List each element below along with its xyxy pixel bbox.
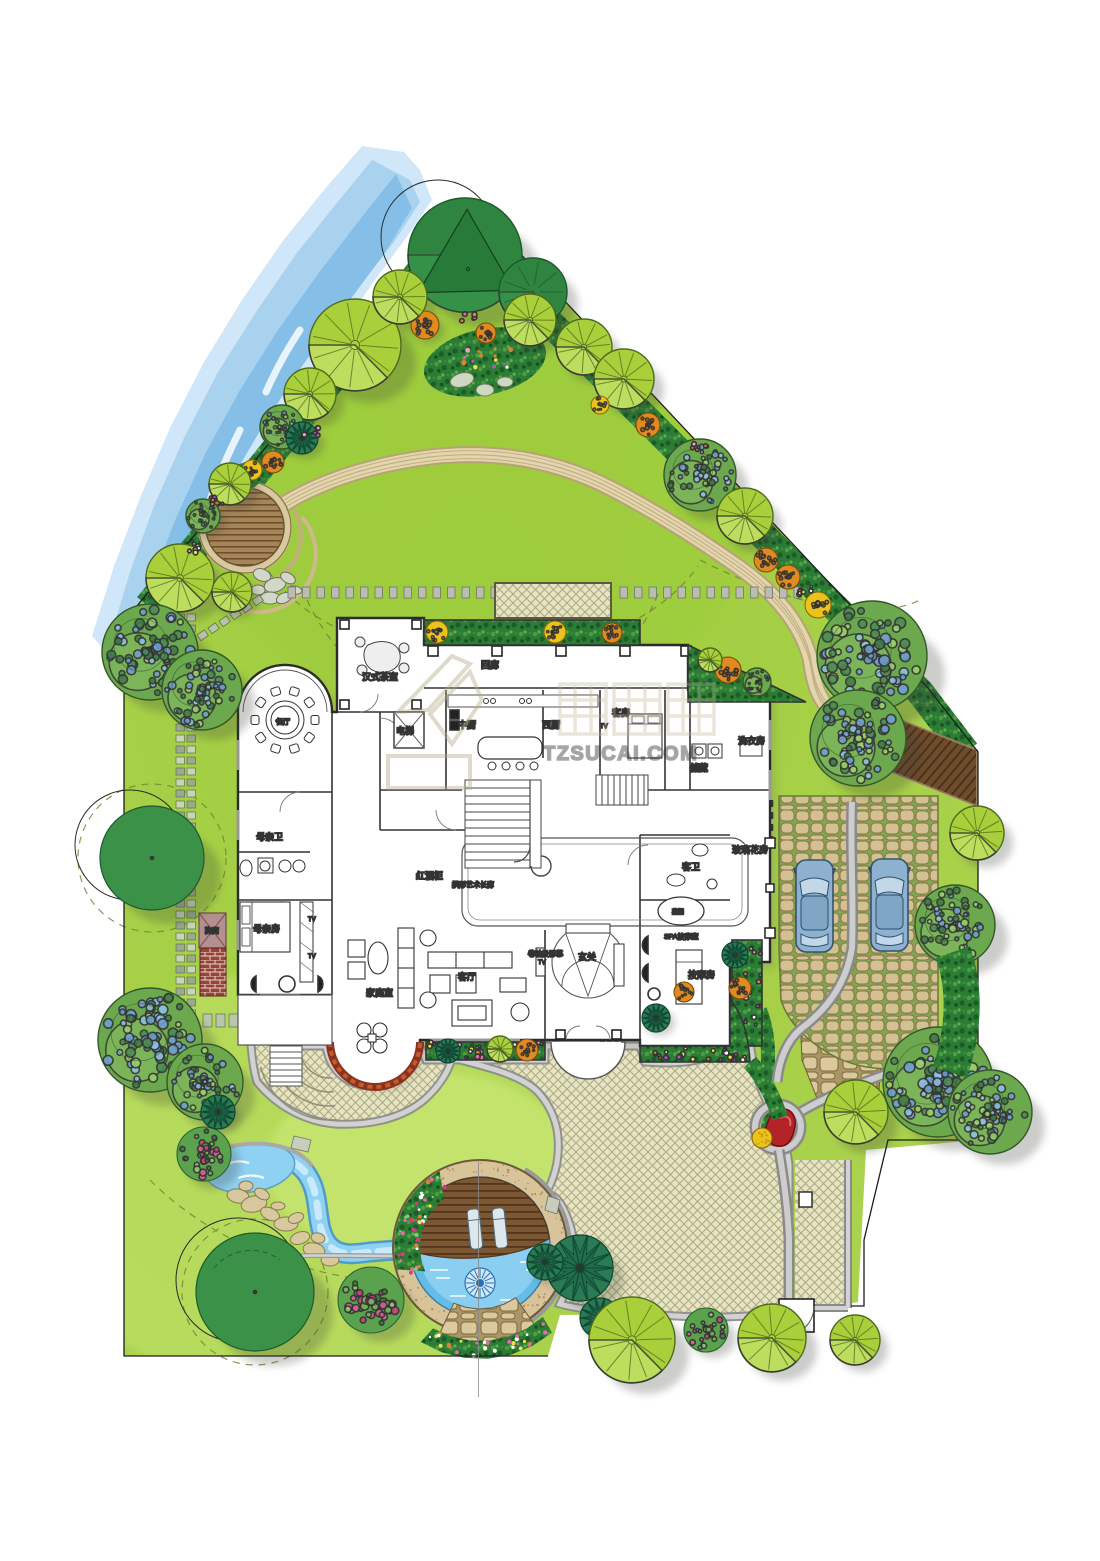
svg-text:蒸桶: 蒸桶	[672, 908, 684, 916]
svg-text:红酒柜: 红酒柜	[416, 870, 443, 881]
svg-text:汉式茶室: 汉式茶室	[362, 671, 398, 682]
svg-text:拱形艺术长廊: 拱形艺术长廊	[452, 880, 494, 889]
svg-text:母亲房: 母亲房	[253, 923, 280, 934]
svg-text:SPA按摩室: SPA按摩室	[664, 932, 699, 941]
svg-text:TV: TV	[538, 960, 546, 966]
svg-text:按摩房: 按摩房	[688, 969, 715, 980]
svg-text:家庭室: 家庭室	[366, 987, 393, 998]
svg-text:玄关: 玄关	[578, 951, 596, 962]
svg-text:电梯: 电梯	[396, 725, 414, 736]
svg-text:TV: TV	[308, 917, 316, 923]
svg-text:客厅: 客厅	[458, 971, 476, 982]
svg-text:卷轴投影幕: 卷轴投影幕	[528, 949, 563, 958]
svg-text:狗窝: 狗窝	[205, 926, 219, 935]
svg-text:洗衣房: 洗衣房	[738, 735, 765, 746]
svg-text:母亲卫: 母亲卫	[256, 831, 283, 842]
svg-text:TZSUCAI.COM: TZSUCAI.COM	[543, 743, 698, 765]
svg-text:TV: TV	[308, 954, 316, 960]
svg-text:玻璃花房: 玻璃花房	[732, 844, 768, 855]
svg-text:餐厅: 餐厅	[276, 717, 290, 726]
svg-text:客卫: 客卫	[682, 861, 700, 872]
svg-text:回廊: 回廊	[481, 659, 499, 670]
svg-text:西厨: 西厨	[542, 720, 560, 730]
